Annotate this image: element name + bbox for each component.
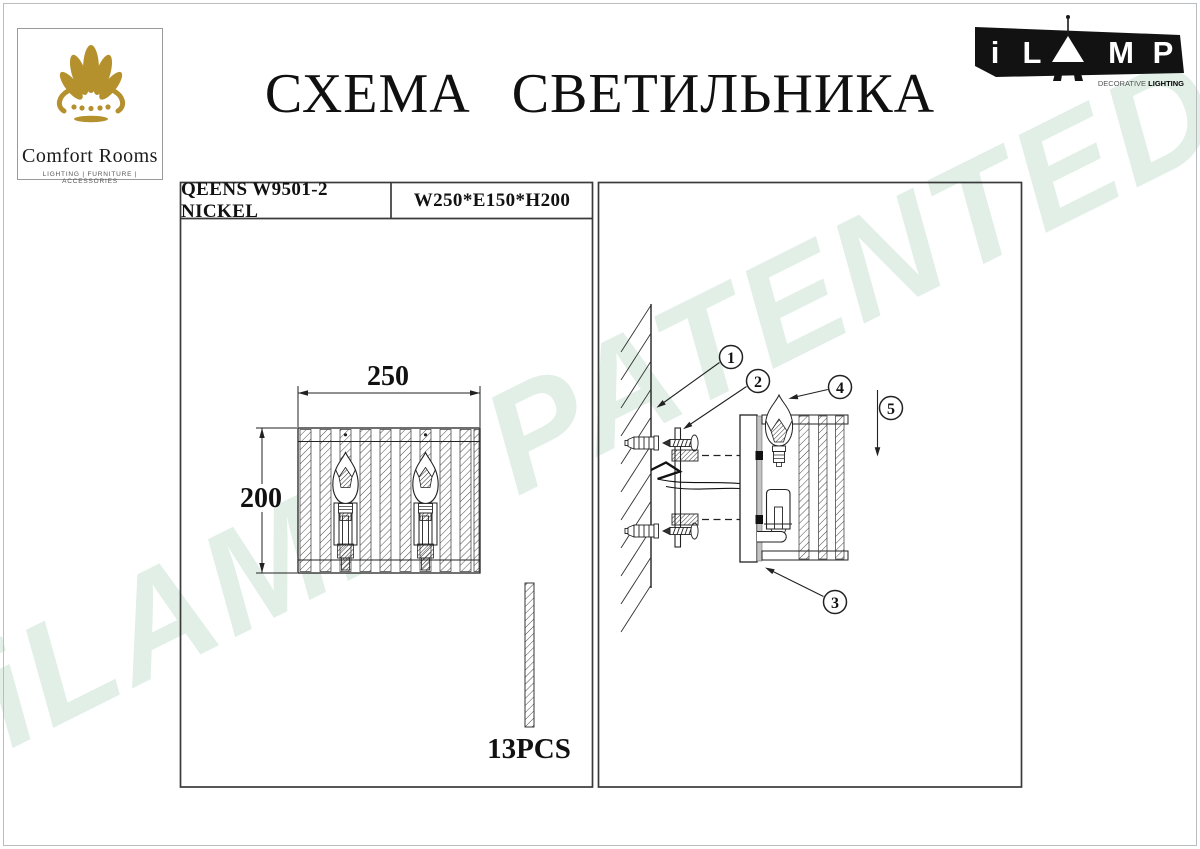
pieces-label: 13PCS (487, 733, 571, 765)
comfort-rooms-name: Comfort Rooms (18, 145, 162, 168)
ilamp-tagline: DECORATIVE LIGHTING (1098, 79, 1184, 88)
schematic-page: iLAMP PATENTED (0, 0, 1200, 849)
front-view: 250 200 13PCS (240, 361, 571, 765)
wall-anchor-bottom (625, 524, 659, 538)
callouts: 1 2 3 4 (657, 346, 903, 614)
side-socket-cup (764, 490, 792, 537)
width-dimension: 250 (298, 361, 480, 427)
side-bulb (765, 395, 792, 467)
callout-4-number: 4 (836, 380, 844, 397)
schematic-drawing: 250 200 13PCS (0, 0, 1200, 849)
assembly-view: 1 2 3 4 (621, 304, 903, 632)
wall-hatching (621, 306, 651, 632)
callout-5-number: 5 (887, 401, 895, 418)
power-wire (651, 463, 740, 490)
ilamp-letter-m: M (1108, 35, 1134, 70)
lamp-cord-mount-icon (1066, 15, 1070, 19)
model-cell: QEENS W9501-2 NICKEL (181, 184, 390, 218)
wall-anchor-top (625, 436, 659, 450)
callout-5: 5 (875, 390, 903, 457)
ilamp-letter-l: L (1023, 35, 1042, 70)
wall (621, 304, 651, 632)
comfort-rooms-logo: Comfort Rooms LIGHTING | FURNITURE | ACC… (17, 28, 163, 180)
ilamp-tagline-bold: LIGHTING (1148, 79, 1184, 88)
callout-3-number: 3 (831, 595, 839, 612)
ilamp-letter-p: P (1153, 35, 1174, 70)
ilamp-letter-i: i (991, 35, 1000, 70)
back-plate (740, 415, 757, 562)
callout-2-number: 2 (754, 374, 762, 391)
callout-4: 4 (789, 376, 852, 400)
lamp-front-body (298, 428, 480, 573)
crown-icon (18, 33, 164, 145)
callout-3: 3 (765, 568, 847, 614)
right-panel-border (599, 183, 1022, 788)
ilamp-logo: i L M P DECORATIVE LIGHTING (964, 10, 1192, 94)
callout-1-number: 1 (727, 350, 735, 367)
comfort-rooms-tagline: LIGHTING | FURNITURE | ACCESSORIES (18, 171, 162, 185)
height-dimension: 200 (240, 428, 297, 573)
page-title: СХЕМА СВЕТИЛЬНИКА (180, 62, 1020, 126)
wire-channel (757, 532, 786, 543)
lamp-side-view (740, 395, 848, 562)
ilamp-tagline-light: DECORATIVE (1098, 79, 1148, 88)
crystal-strip-sample: 13PCS (487, 583, 571, 765)
width-label: 250 (367, 361, 409, 392)
height-label: 200 (240, 483, 282, 514)
dimensions-cell: W250*E150*H200 (392, 184, 592, 218)
